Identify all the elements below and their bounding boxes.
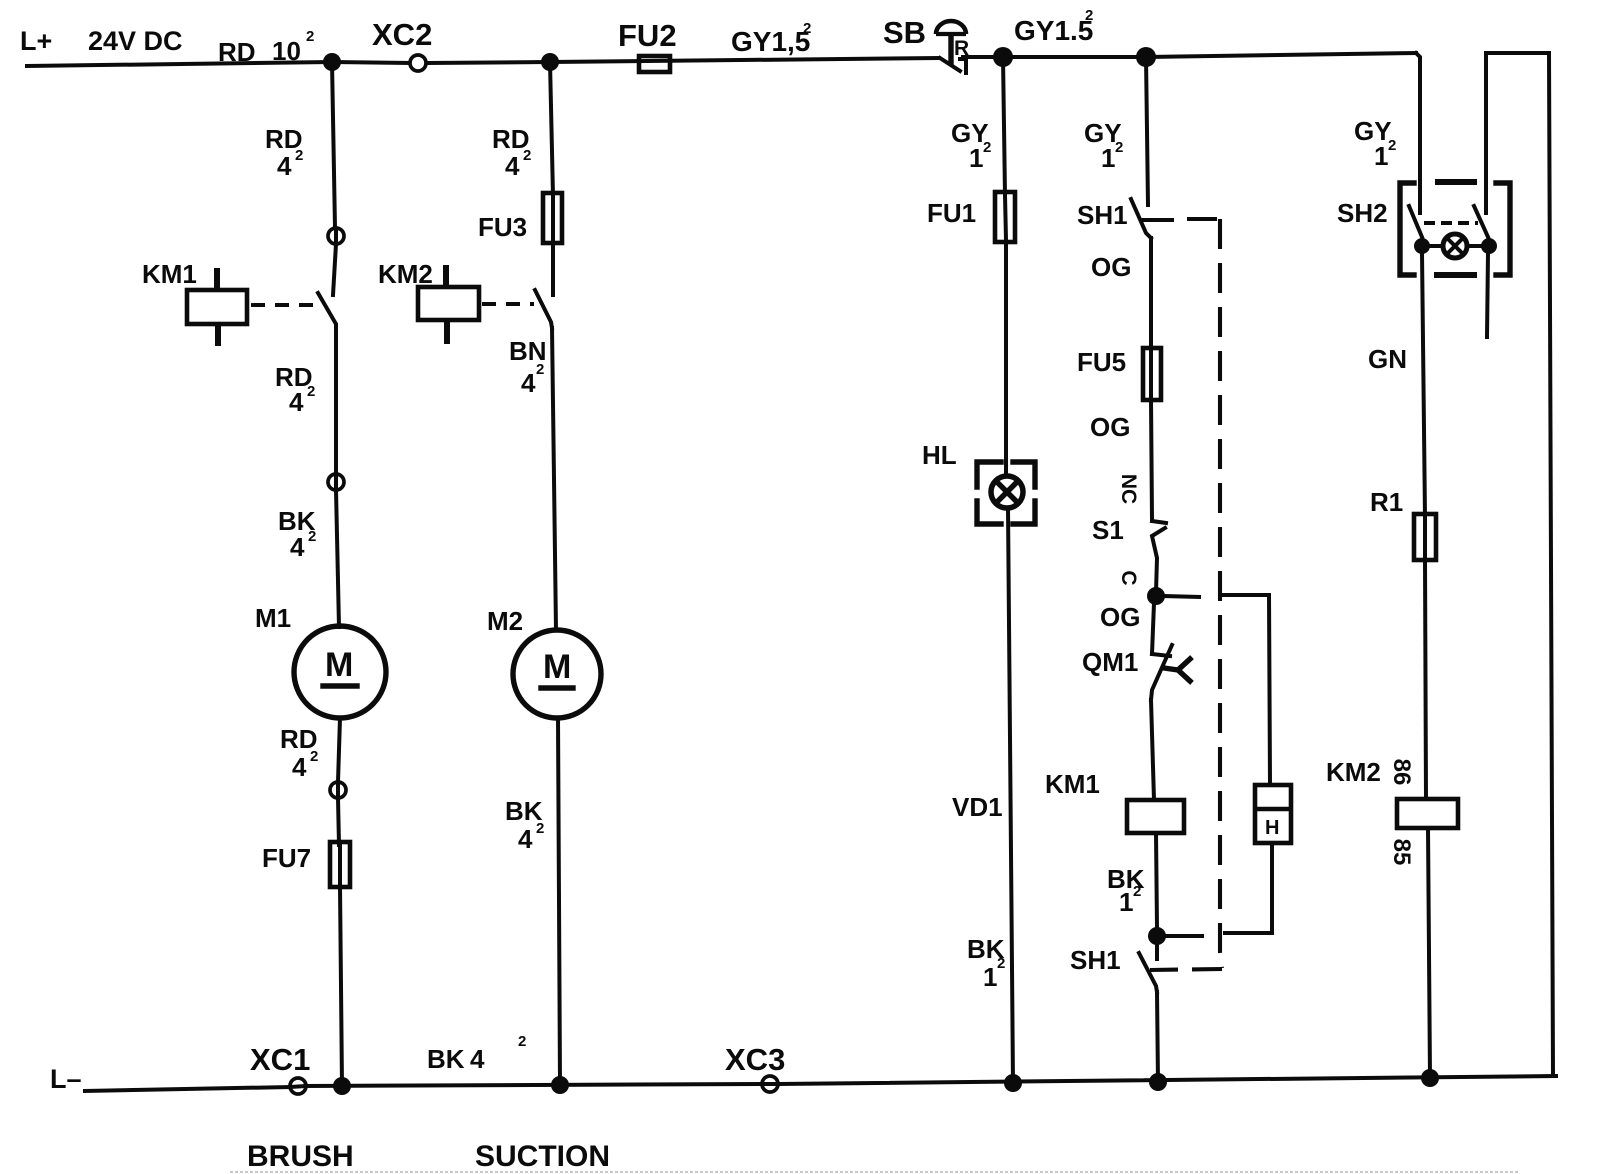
svg-text:NC: NC xyxy=(1117,474,1140,504)
svg-text:2: 2 xyxy=(803,20,811,37)
svg-text:1: 1 xyxy=(1374,141,1388,171)
svg-text:KM1: KM1 xyxy=(142,259,197,289)
svg-text:XC3: XC3 xyxy=(725,1042,785,1077)
svg-text:SH2: SH2 xyxy=(1337,198,1388,228)
svg-text:2: 2 xyxy=(1133,883,1141,900)
svg-text:2: 2 xyxy=(536,361,544,378)
svg-text:24V DC: 24V DC xyxy=(88,26,183,56)
svg-text:2: 2 xyxy=(536,820,544,837)
svg-text:SUCTION: SUCTION xyxy=(475,1140,610,1173)
svg-text:2: 2 xyxy=(518,1033,526,1050)
svg-text:BK: BK xyxy=(427,1044,465,1074)
svg-text:1: 1 xyxy=(983,962,997,992)
svg-text:KM2: KM2 xyxy=(378,259,433,289)
svg-text:OG: OG xyxy=(1091,252,1131,282)
svg-text:VD1: VD1 xyxy=(952,792,1003,822)
svg-text:GN: GN xyxy=(1368,344,1407,374)
svg-text:FU3: FU3 xyxy=(478,212,527,242)
svg-text:2: 2 xyxy=(983,139,991,156)
svg-text:4: 4 xyxy=(290,532,305,562)
svg-text:XC1: XC1 xyxy=(250,1042,310,1077)
svg-text:1: 1 xyxy=(969,143,983,173)
svg-text:10: 10 xyxy=(272,36,301,66)
svg-text:2: 2 xyxy=(1115,139,1123,156)
svg-text:SH1: SH1 xyxy=(1070,945,1121,975)
svg-text:4: 4 xyxy=(518,824,533,854)
svg-text:2: 2 xyxy=(307,383,315,400)
svg-text:4: 4 xyxy=(505,151,520,181)
svg-text:4: 4 xyxy=(470,1044,485,1074)
svg-text:SH1: SH1 xyxy=(1077,200,1128,230)
svg-text:L–: L– xyxy=(50,1064,82,1094)
svg-text:KM2: KM2 xyxy=(1326,757,1381,787)
svg-text:HL: HL xyxy=(922,440,957,470)
svg-text:BRUSH: BRUSH xyxy=(247,1140,354,1173)
svg-text:85: 85 xyxy=(1388,839,1415,866)
svg-text:KM1: KM1 xyxy=(1045,769,1100,799)
svg-text:R1: R1 xyxy=(1370,487,1403,517)
svg-text:4: 4 xyxy=(277,151,292,181)
svg-text:RD: RD xyxy=(218,37,256,67)
svg-text:OG: OG xyxy=(1090,412,1130,442)
svg-text:XC2: XC2 xyxy=(372,17,432,52)
svg-text:L+: L+ xyxy=(20,26,52,56)
svg-text:M: M xyxy=(325,646,353,684)
svg-text:FU7: FU7 xyxy=(262,843,311,873)
svg-text:2: 2 xyxy=(295,147,303,164)
svg-text:2: 2 xyxy=(310,748,318,765)
svg-text:2: 2 xyxy=(1085,7,1093,24)
svg-text:FU5: FU5 xyxy=(1077,347,1126,377)
svg-text:M: M xyxy=(543,648,571,686)
svg-text:H: H xyxy=(1265,817,1279,839)
svg-text:4: 4 xyxy=(521,368,536,398)
svg-text:86: 86 xyxy=(1388,759,1415,786)
svg-text:M1: M1 xyxy=(255,603,291,633)
svg-text:OG: OG xyxy=(1100,602,1140,632)
svg-text:QM1: QM1 xyxy=(1082,647,1138,677)
svg-text:2: 2 xyxy=(997,955,1005,972)
svg-text:GY1,5: GY1,5 xyxy=(731,26,810,57)
svg-text:S1: S1 xyxy=(1092,515,1124,545)
svg-text:M2: M2 xyxy=(487,606,523,636)
svg-text:2: 2 xyxy=(1388,137,1396,154)
svg-text:FU1: FU1 xyxy=(927,198,976,228)
svg-text:SB: SB xyxy=(883,15,926,50)
svg-text:2: 2 xyxy=(308,528,316,545)
svg-text:GY1.5: GY1.5 xyxy=(1014,15,1093,46)
svg-text:1: 1 xyxy=(1119,887,1133,917)
svg-text:2: 2 xyxy=(306,28,314,45)
svg-text:4: 4 xyxy=(289,387,304,417)
svg-text:FU2: FU2 xyxy=(618,18,677,53)
svg-text:1: 1 xyxy=(1101,143,1115,173)
svg-text:C: C xyxy=(1117,570,1140,585)
svg-text:2: 2 xyxy=(523,147,531,164)
svg-text:4: 4 xyxy=(292,752,307,782)
